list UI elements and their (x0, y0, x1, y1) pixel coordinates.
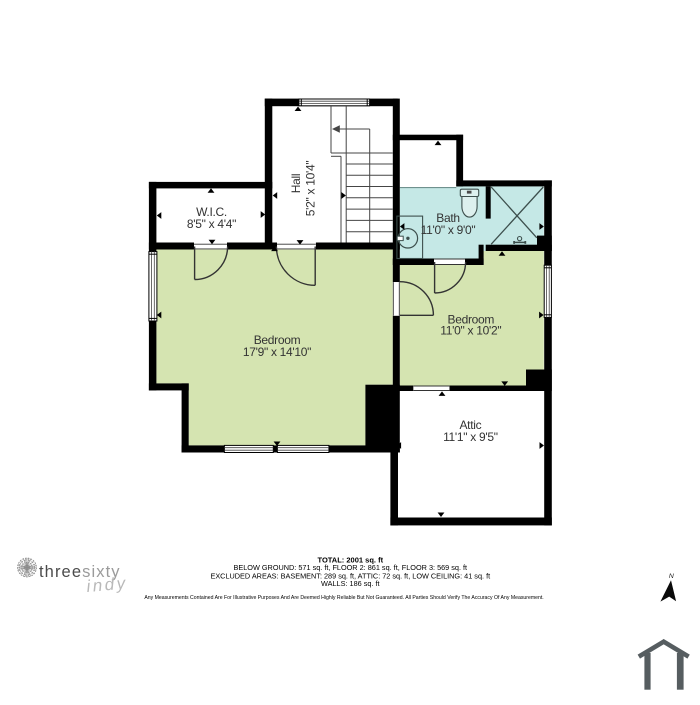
svg-text:indy: indy (86, 573, 129, 596)
svg-text:11'0" x 10'2": 11'0" x 10'2" (440, 323, 501, 337)
svg-text:Any Measurements Contained Are: Any Measurements Contained Are For Illus… (144, 595, 543, 601)
svg-text:5'2" x 10'4": 5'2" x 10'4" (304, 161, 318, 217)
svg-text:N: N (669, 573, 674, 580)
svg-text:11'0" x 9'0": 11'0" x 9'0" (421, 223, 476, 237)
svg-text:8'5" x 4'4": 8'5" x 4'4" (187, 217, 236, 231)
svg-text:WALLS: 186 sq. ft: WALLS: 186 sq. ft (321, 579, 380, 588)
svg-text:Hall: Hall (289, 174, 303, 193)
svg-text:17'9" x 14'10": 17'9" x 14'10" (243, 345, 311, 359)
svg-text:11'1" x 9'5": 11'1" x 9'5" (443, 430, 498, 444)
